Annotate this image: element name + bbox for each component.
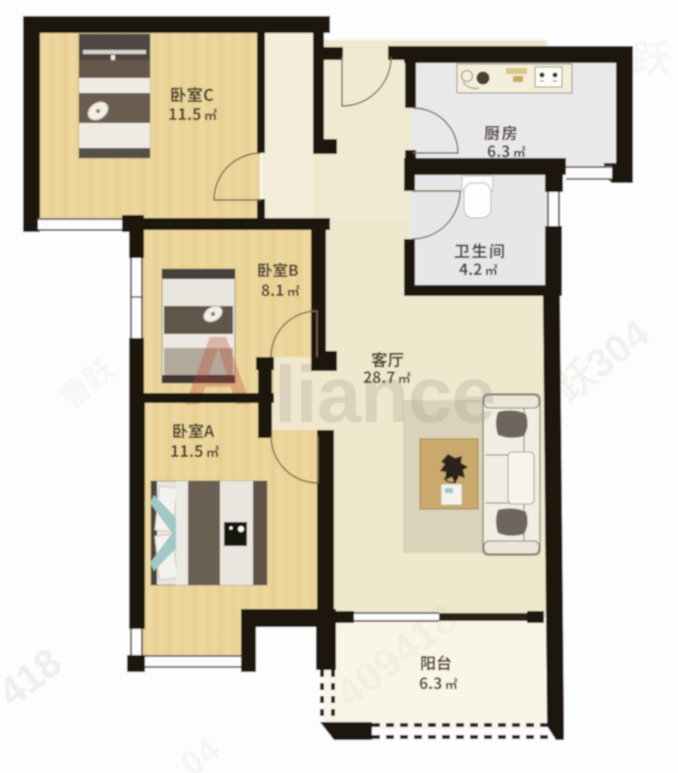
svg-text:lliance: lliance xyxy=(253,350,495,439)
svg-text:A: A xyxy=(183,316,253,425)
